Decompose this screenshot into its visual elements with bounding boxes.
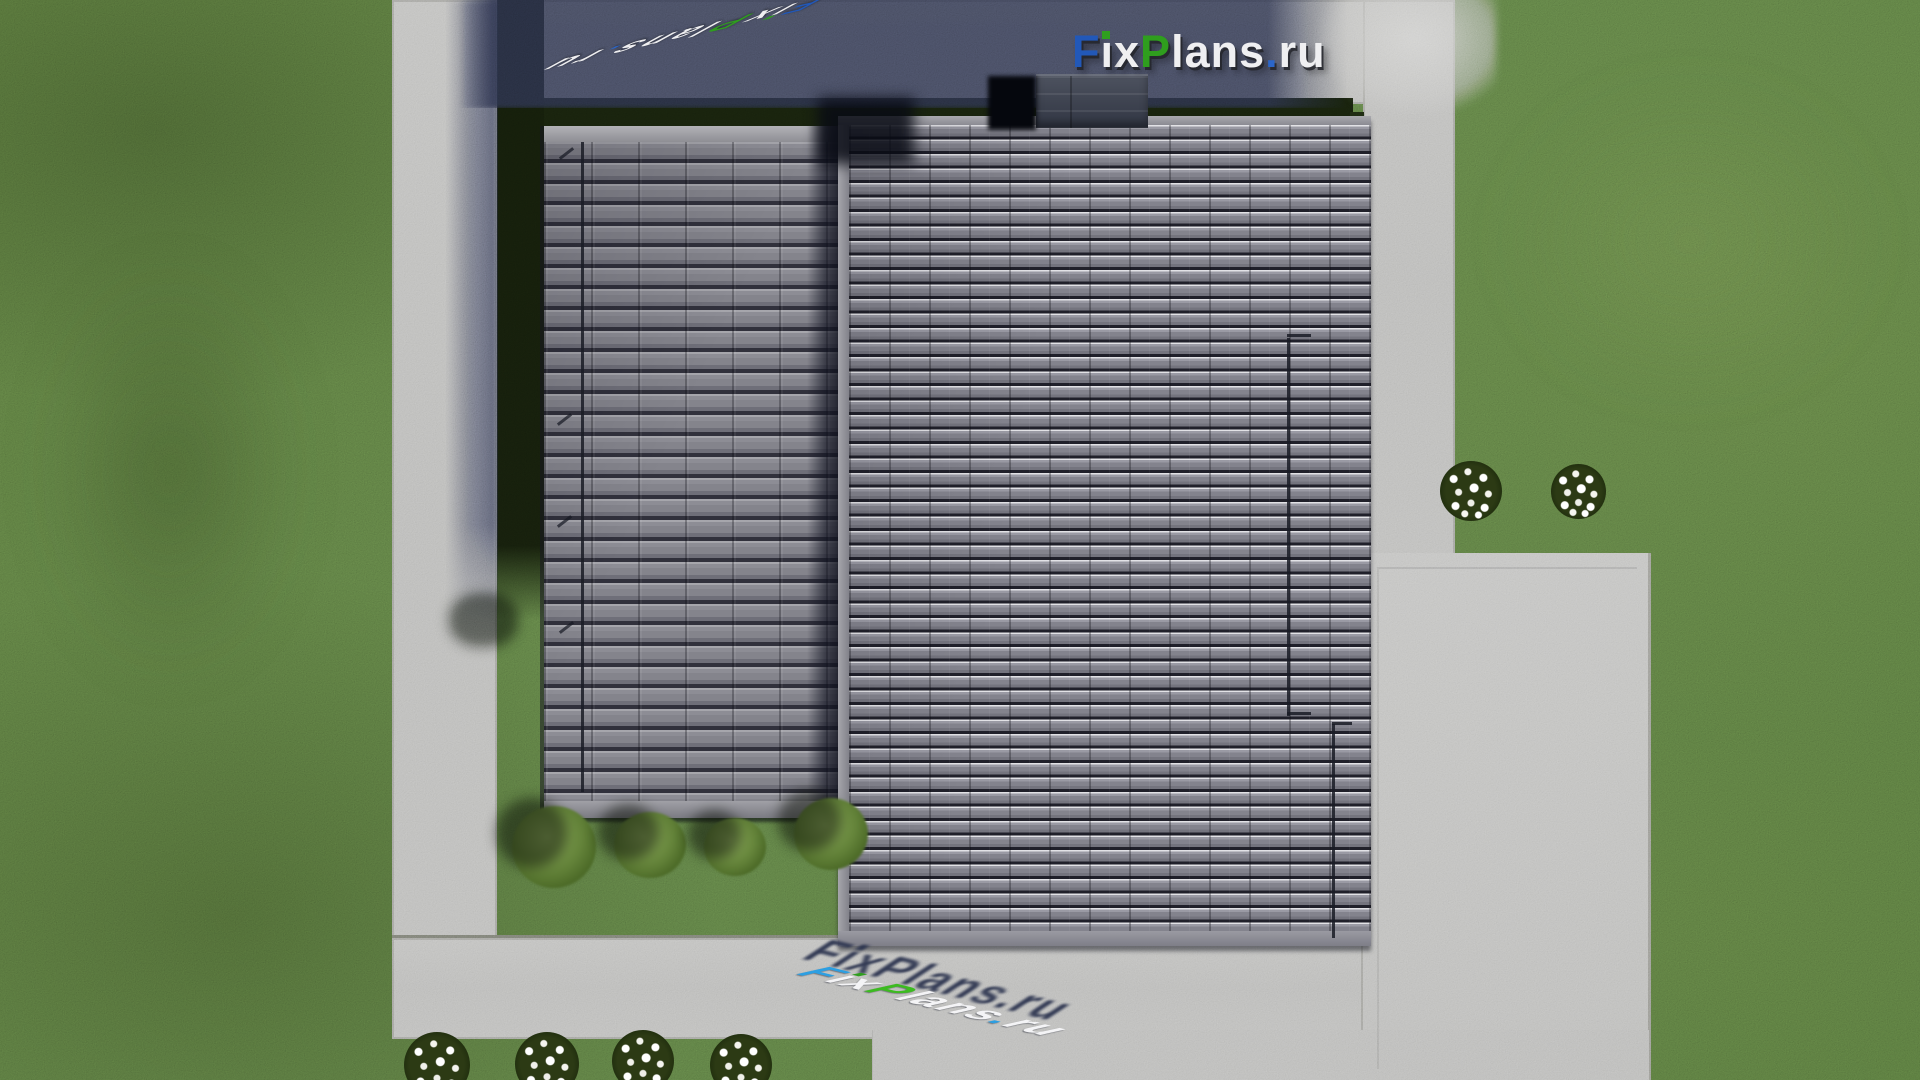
- roof-junction-shadow: [818, 98, 914, 164]
- bush-shadow-on-walkway: [448, 592, 518, 648]
- roof-cable-right-lower: [1332, 724, 1335, 938]
- site-plan-render: FıxPlans.ru FıxPlans.ru FıxPlans.ru FıxP…: [0, 0, 1920, 1080]
- cable-hook: [1332, 722, 1352, 725]
- white-flower-bush: [1551, 464, 1606, 519]
- roof-cable-right-upper: [1287, 338, 1290, 716]
- chimney: [1036, 74, 1148, 128]
- roof-section-right: [838, 116, 1371, 946]
- roof-left-tiles: [544, 142, 840, 802]
- cable-hook: [1287, 712, 1311, 715]
- roof-left-shadow-strip: [807, 126, 840, 818]
- logo-letter: .: [1265, 26, 1279, 77]
- driveway-seam-lines: [1377, 567, 1637, 1069]
- chimney-shadow: [988, 76, 1036, 130]
- fixplans-logo: FıxPlans.ru: [1072, 26, 1326, 78]
- logo-letter: ru: [1279, 26, 1326, 77]
- logo-letter: x: [1114, 26, 1140, 77]
- grass-tone-patch: [40, 260, 300, 680]
- white-flower-bush: [1440, 461, 1502, 521]
- cable-hook: [1287, 334, 1311, 337]
- logo-letter: ı: [1101, 26, 1115, 77]
- logo-letter: lans: [1171, 26, 1265, 77]
- shrub: [614, 812, 686, 878]
- sunlit-concrete-patch: [1316, 0, 1496, 116]
- roof-cable-left: [581, 142, 584, 792]
- shrub: [704, 818, 766, 876]
- logo-letter: F: [1072, 26, 1101, 77]
- shrub: [512, 806, 596, 888]
- shrub: [794, 798, 868, 870]
- logo-letter: P: [1140, 26, 1171, 77]
- roof-left-top-fascia: [544, 126, 840, 142]
- roof-section-left: [540, 126, 840, 818]
- grass-tone-patch: [1500, 80, 1880, 400]
- roof-right-bottom-fascia: [838, 931, 1371, 946]
- roof-right-tiles: [849, 125, 1371, 931]
